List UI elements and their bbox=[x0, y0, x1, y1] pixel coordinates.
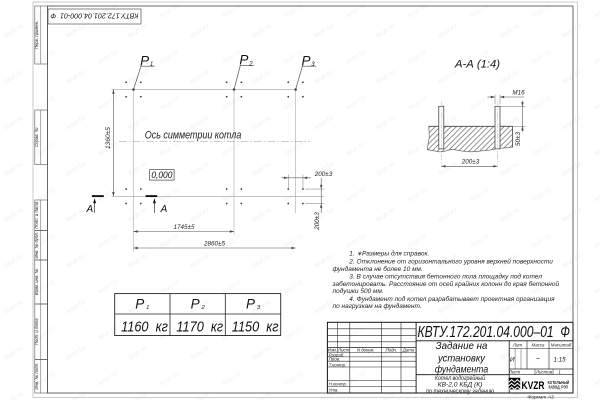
svg-text:фундамента не более 10 мм.: фундамента не более 10 мм. bbox=[333, 265, 424, 273]
svg-text:1. ∗Размеры для справок.: 1. ∗Размеры для справок. bbox=[349, 249, 429, 257]
svg-text:P: P bbox=[135, 296, 144, 311]
svg-text:М16: М16 bbox=[512, 90, 525, 97]
svg-text:1150 кг: 1150 кг bbox=[232, 319, 279, 335]
svg-text:200±3: 200±3 bbox=[314, 171, 333, 178]
svg-text:1: 1 bbox=[146, 305, 149, 311]
svg-text:1360±5: 1360±5 bbox=[105, 127, 112, 149]
svg-text:200±3: 200±3 bbox=[314, 212, 321, 231]
svg-text:Листов: Листов bbox=[535, 369, 553, 374]
svg-text:1: 1 bbox=[150, 62, 153, 68]
svg-text:Перв. примен.: Перв. примен. bbox=[34, 21, 39, 50]
svg-text:2860±5: 2860±5 bbox=[203, 240, 225, 247]
svg-text:200±3: 200±3 bbox=[461, 158, 480, 165]
svg-text:по нагрузкам на фундамент.: по нагрузкам на фундамент. bbox=[333, 302, 422, 310]
svg-text:Инв. № подл.: Инв. № подл. bbox=[34, 363, 39, 390]
svg-text:2. Отклонение от горизонтально: 2. Отклонение от горизонтального уровня … bbox=[348, 258, 553, 266]
svg-text:50±3: 50±3 bbox=[515, 132, 522, 146]
svg-text:Котел водогрейный: Котел водогрейный bbox=[435, 375, 486, 382]
svg-text:P: P bbox=[246, 296, 255, 311]
svg-text:Подп. и дата: Подп. и дата bbox=[34, 201, 39, 229]
svg-text:3. В случае отсутствия бетонно: 3. В случае отсутствия бетонного пола пл… bbox=[349, 273, 542, 281]
svg-text:1160 кг: 1160 кг bbox=[121, 319, 168, 335]
svg-text:Взам. инв. №: Взам. инв. № bbox=[34, 268, 39, 295]
svg-text:Подп. и дата: Подп. и дата bbox=[34, 318, 39, 346]
svg-text:Дата: Дата bbox=[402, 348, 415, 353]
svg-text:КВТУ.172.201.04.000–01 Ф: КВТУ.172.201.04.000–01 Ф bbox=[418, 324, 571, 341]
svg-text:Масса: Масса bbox=[532, 343, 546, 348]
svg-text:подушки 500 мм.: подушки 500 мм. bbox=[333, 287, 384, 295]
svg-text:А-А (1:4): А-А (1:4) bbox=[454, 58, 500, 70]
svg-text:Лит.: Лит. bbox=[512, 343, 523, 348]
svg-text:2: 2 bbox=[248, 61, 253, 67]
svg-text:0,000: 0,000 bbox=[151, 170, 172, 180]
svg-text:4. Фундамент под котел разраба: 4. Фундамент под котел разрабатывает про… bbox=[349, 295, 555, 303]
svg-text:ЗАВОД. РЭП: ЗАВОД. РЭП bbox=[548, 385, 568, 390]
svg-text:Формат А3: Формат А3 bbox=[527, 395, 554, 400]
svg-text:Инв. № дубл.: Инв. № дубл. bbox=[34, 232, 39, 258]
svg-text:Пров.: Пров. bbox=[329, 357, 341, 362]
svg-text:P: P bbox=[140, 53, 149, 68]
svg-text:P: P bbox=[191, 296, 200, 311]
svg-text:Т.контр.: Т.контр. bbox=[329, 362, 347, 367]
svg-text:N докум.: N докум. bbox=[357, 348, 375, 353]
svg-text:1745±5: 1745±5 bbox=[174, 224, 195, 231]
svg-text:Н.контр.: Н.контр. bbox=[329, 382, 348, 387]
svg-text:Лист: Лист bbox=[508, 369, 521, 374]
svg-text:А: А bbox=[160, 204, 168, 215]
svg-text:Подп.: Подп. bbox=[385, 348, 397, 353]
svg-text:Масштаб: Масштаб bbox=[551, 343, 572, 348]
svg-text:1170 кг: 1170 кг bbox=[176, 319, 223, 335]
svg-text:фундамента: фундамента bbox=[435, 363, 488, 375]
svg-text:КВ-2,0 КБД (К): КВ-2,0 КБД (К) bbox=[438, 382, 483, 388]
svg-text:КВТУ.172.201.04.000-01 Ф: КВТУ.172.201.04.000-01 Ф bbox=[51, 12, 139, 21]
svg-text:забетонировать. Расстояние от: забетонировать. Расстояние от осей крайн… bbox=[332, 280, 560, 288]
svg-text:KVZR: KVZR bbox=[522, 380, 545, 392]
svg-text:Справ. №: Справ. № bbox=[34, 127, 39, 147]
svg-text:по техническому заданию: по техническому заданию bbox=[426, 389, 495, 395]
svg-text:P: P bbox=[239, 53, 248, 68]
svg-text:1: 1 bbox=[558, 369, 561, 374]
svg-text:А: А bbox=[85, 204, 93, 215]
svg-text:1:15: 1:15 bbox=[553, 357, 566, 364]
svg-text:Ось симметрии котла: Ось симметрии котла bbox=[145, 130, 242, 142]
svg-text:–: – bbox=[535, 356, 540, 362]
svg-text:Задание на: Задание на bbox=[436, 340, 488, 352]
svg-text:Утв.: Утв. bbox=[329, 388, 339, 393]
svg-text:И: И bbox=[510, 357, 515, 364]
svg-text:P: P bbox=[302, 53, 311, 68]
